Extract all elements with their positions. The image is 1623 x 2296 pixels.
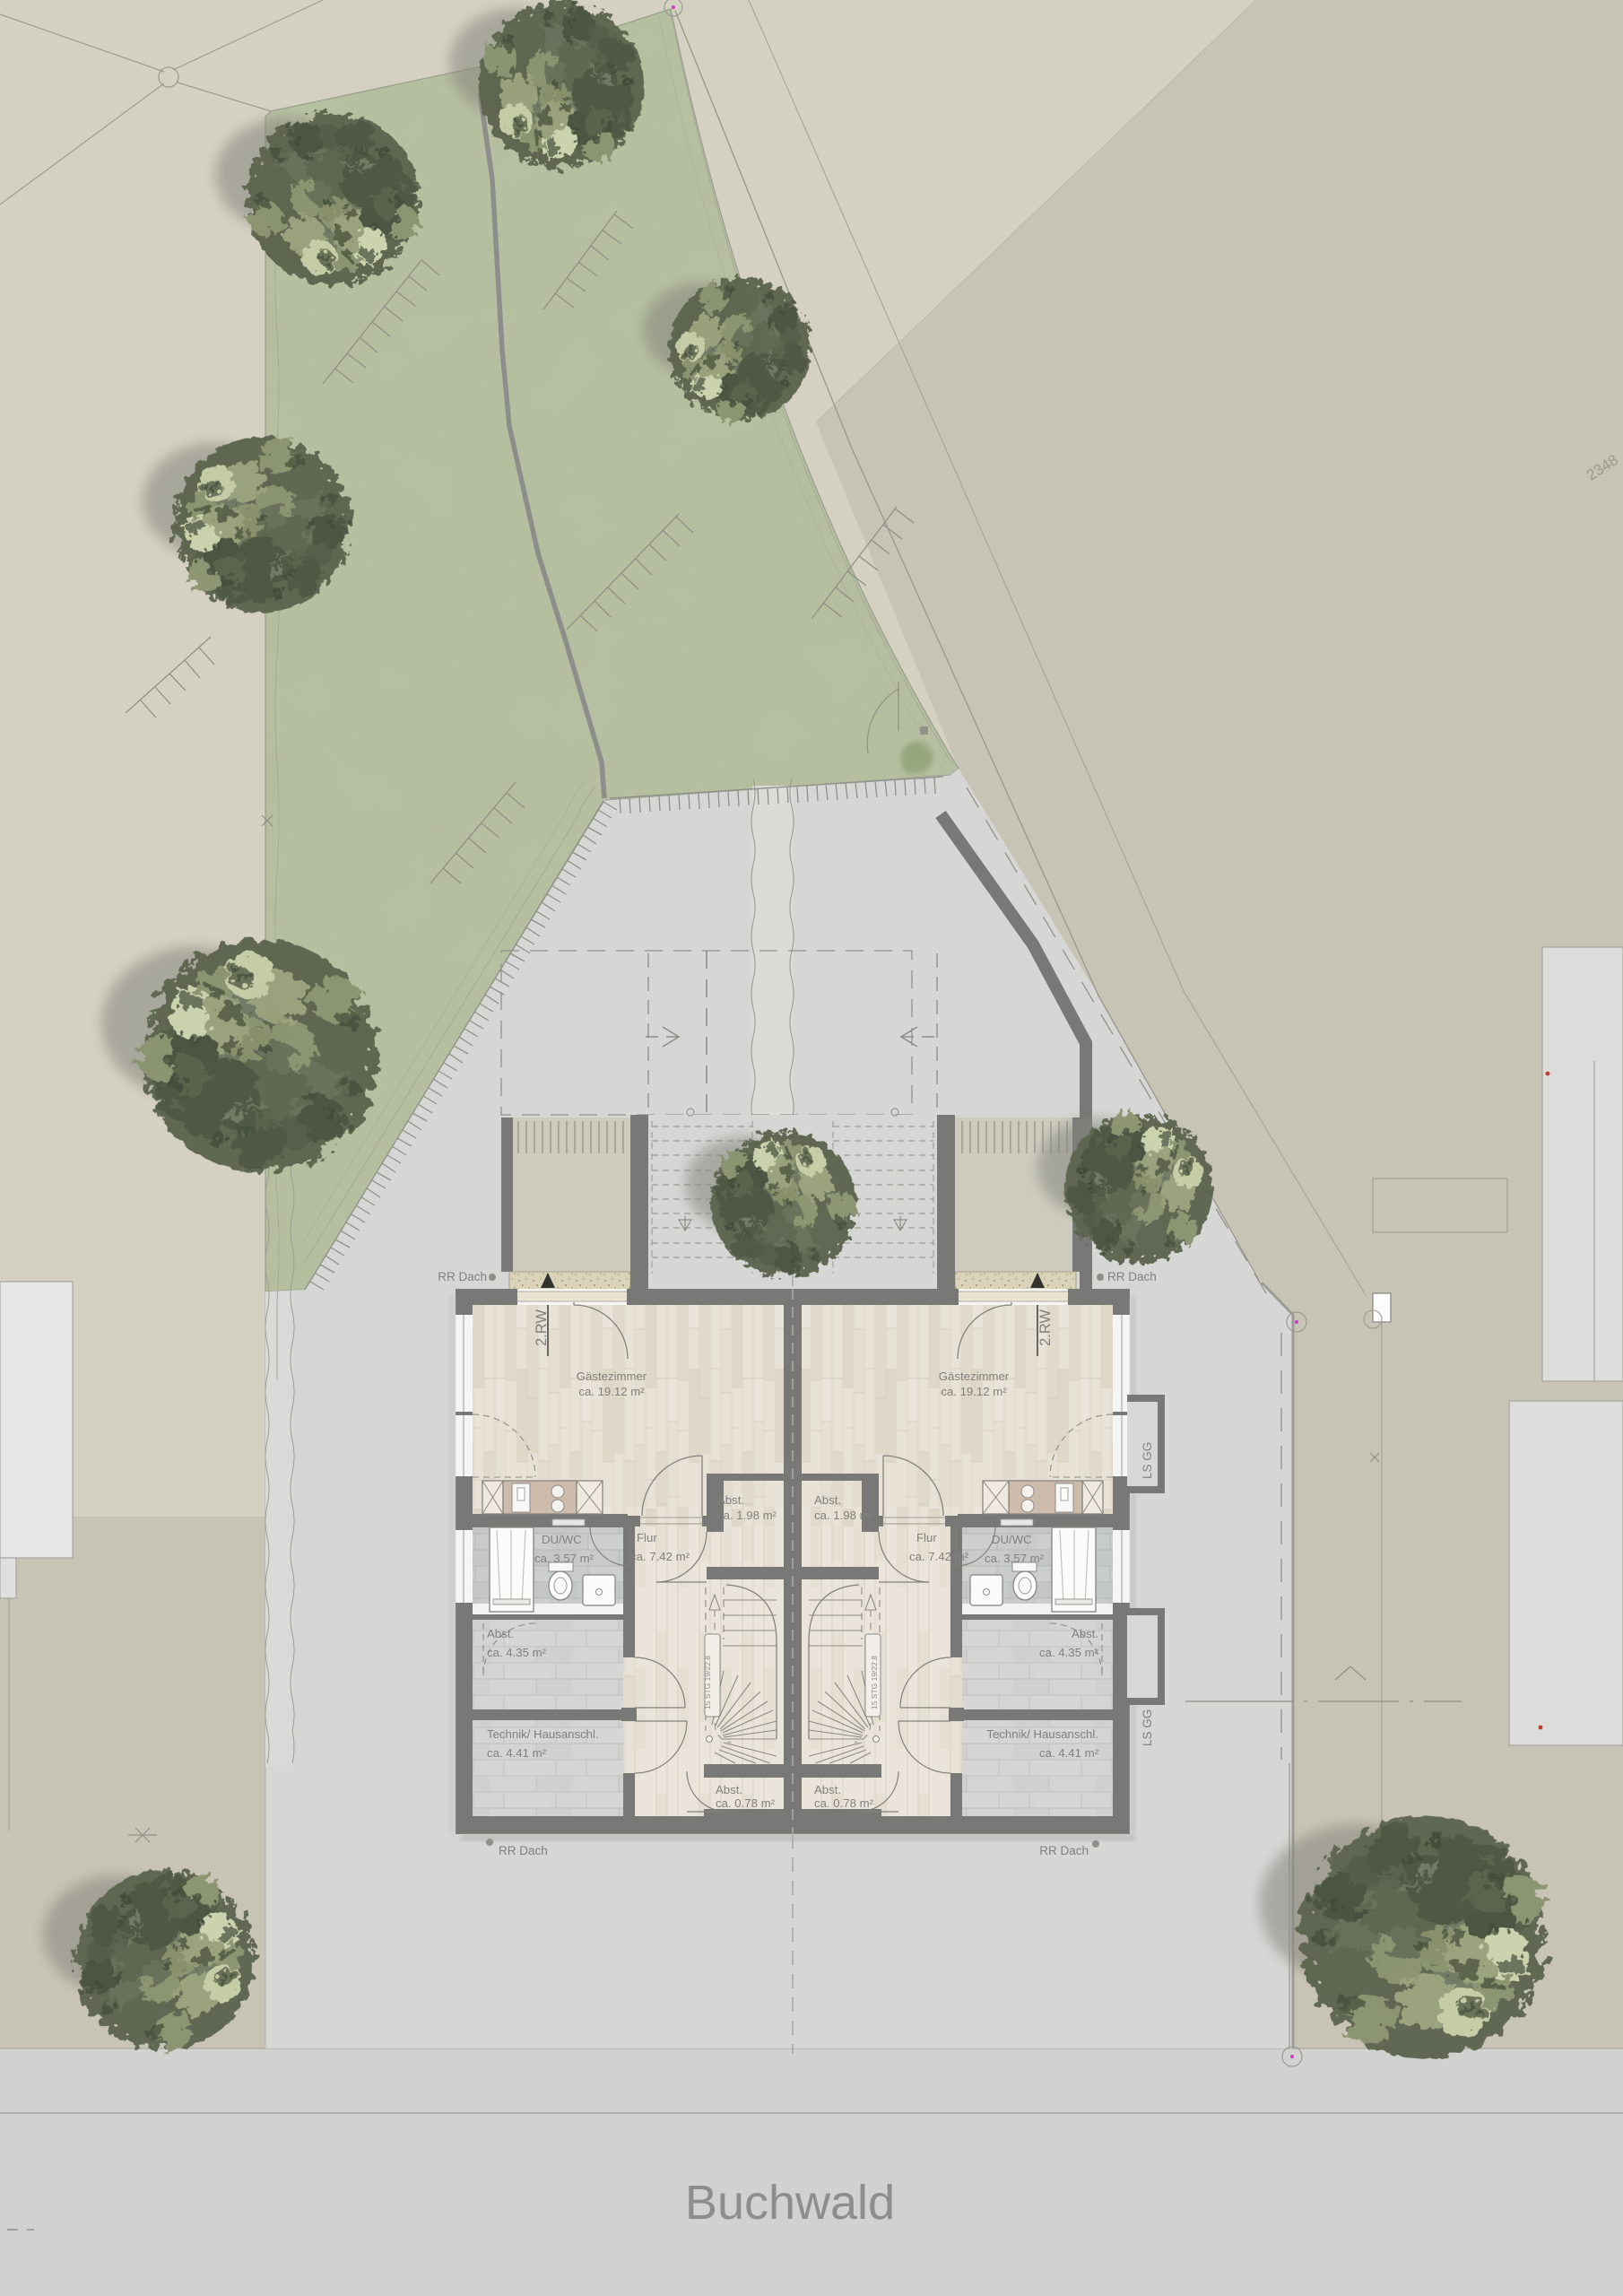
svg-text:15 STG 19/22.8: 15 STG 19/22.8 bbox=[703, 1656, 712, 1709]
svg-text:ca. 4.35 m²: ca. 4.35 m² bbox=[1039, 1646, 1099, 1659]
svg-text:ca. 19.12 m²: ca. 19.12 m² bbox=[941, 1385, 1007, 1398]
svg-text:ca. 1.98 m²: ca. 1.98 m² bbox=[814, 1509, 874, 1522]
svg-text:Buchwald: Buchwald bbox=[685, 2176, 895, 2230]
svg-text:Abst.: Abst. bbox=[717, 1493, 744, 1507]
svg-text:RR Dach: RR Dach bbox=[1039, 1844, 1089, 1857]
svg-text:ca. 3.57 m²: ca. 3.57 m² bbox=[985, 1552, 1045, 1565]
svg-text:LS GG: LS GG bbox=[1141, 1442, 1154, 1479]
svg-text:15 STG 19/22.8: 15 STG 19/22.8 bbox=[870, 1656, 879, 1709]
svg-text:RR Dach: RR Dach bbox=[438, 1270, 487, 1283]
svg-text:2.RW: 2.RW bbox=[1037, 1309, 1054, 1346]
svg-text:ca. 1.98 m²: ca. 1.98 m² bbox=[717, 1509, 777, 1522]
svg-text:RR Dach: RR Dach bbox=[499, 1844, 548, 1857]
svg-text:ca. 4.41 m²: ca. 4.41 m² bbox=[1039, 1746, 1099, 1760]
svg-text:Abst.: Abst. bbox=[1072, 1627, 1098, 1640]
svg-text:Flur: Flur bbox=[637, 1531, 657, 1544]
svg-text:Abst.: Abst. bbox=[814, 1783, 841, 1796]
svg-text:Abst.: Abst. bbox=[487, 1627, 514, 1640]
svg-text:ca. 4.41 m²: ca. 4.41 m² bbox=[487, 1746, 547, 1760]
svg-text:Gästezimmer: Gästezimmer bbox=[577, 1370, 647, 1383]
svg-text:ca. 7.42 m²: ca. 7.42 m² bbox=[630, 1550, 690, 1563]
svg-text:RR Dach: RR Dach bbox=[1107, 1270, 1157, 1283]
svg-text:DU/WC: DU/WC bbox=[542, 1533, 582, 1546]
svg-text:Flur: Flur bbox=[916, 1531, 937, 1544]
svg-text:Abst.: Abst. bbox=[814, 1493, 841, 1507]
svg-text:Abst.: Abst. bbox=[716, 1783, 742, 1796]
svg-text:Technik/ Hausanschl.: Technik/ Hausanschl. bbox=[986, 1727, 1098, 1741]
svg-text:2.RW: 2.RW bbox=[534, 1309, 550, 1346]
svg-text:ca. 3.57 m²: ca. 3.57 m² bbox=[534, 1552, 595, 1565]
svg-text:DU/WC: DU/WC bbox=[992, 1533, 1032, 1546]
svg-text:Gästezimmer: Gästezimmer bbox=[939, 1370, 1010, 1383]
svg-text:ca. 0.78 m²: ca. 0.78 m² bbox=[716, 1796, 776, 1810]
svg-text:ca. 0.78 m²: ca. 0.78 m² bbox=[814, 1796, 874, 1810]
svg-text:Technik/ Hausanschl.: Technik/ Hausanschl. bbox=[487, 1727, 599, 1741]
svg-text:ca. 19.12 m²: ca. 19.12 m² bbox=[578, 1385, 645, 1398]
svg-text:LS GG: LS GG bbox=[1141, 1709, 1154, 1746]
svg-text:ca. 7.42 m²: ca. 7.42 m² bbox=[909, 1550, 969, 1563]
svg-text:ca. 4.35 m²: ca. 4.35 m² bbox=[487, 1646, 547, 1659]
